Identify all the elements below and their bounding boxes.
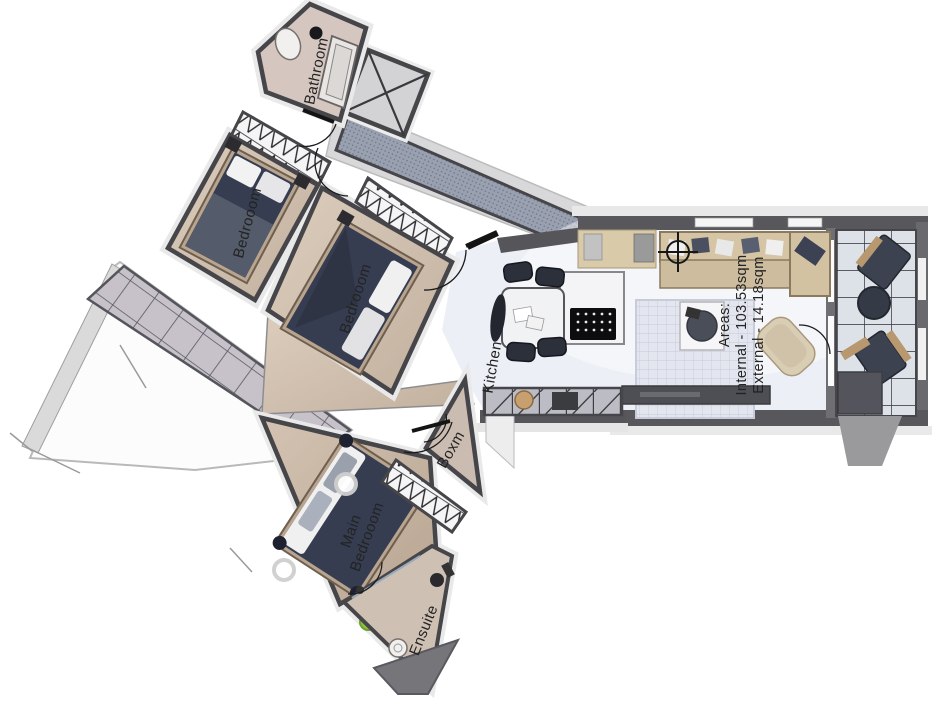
window-right-2 [918,328,926,380]
ensuite-toilet [430,573,444,587]
outer-corner-step [486,412,514,468]
hob [570,308,616,340]
balcony-table [858,287,890,319]
kitchen-sink [515,391,533,409]
window-top-2 [788,218,822,227]
oven [552,392,578,410]
window-right [918,258,926,300]
spotlight-2 [274,560,294,580]
floorplan-canvas: Bathroom Bedrooom Bedrooom Kitchen Boxm … [0,0,936,720]
spotlight [336,474,356,494]
balcony-unit [838,372,882,414]
areas-title: Areas: [717,303,733,347]
window-top [695,218,753,227]
areas-internal: Internal - 103.53sqm [734,255,750,396]
ensuite-sink [389,639,407,657]
floorplan-drawing: Bathroom Bedrooom Bedrooom Kitchen Boxm … [0,0,936,720]
balcony-south-wall [838,416,902,466]
areas-external: External - 14.18sqm [751,256,767,393]
